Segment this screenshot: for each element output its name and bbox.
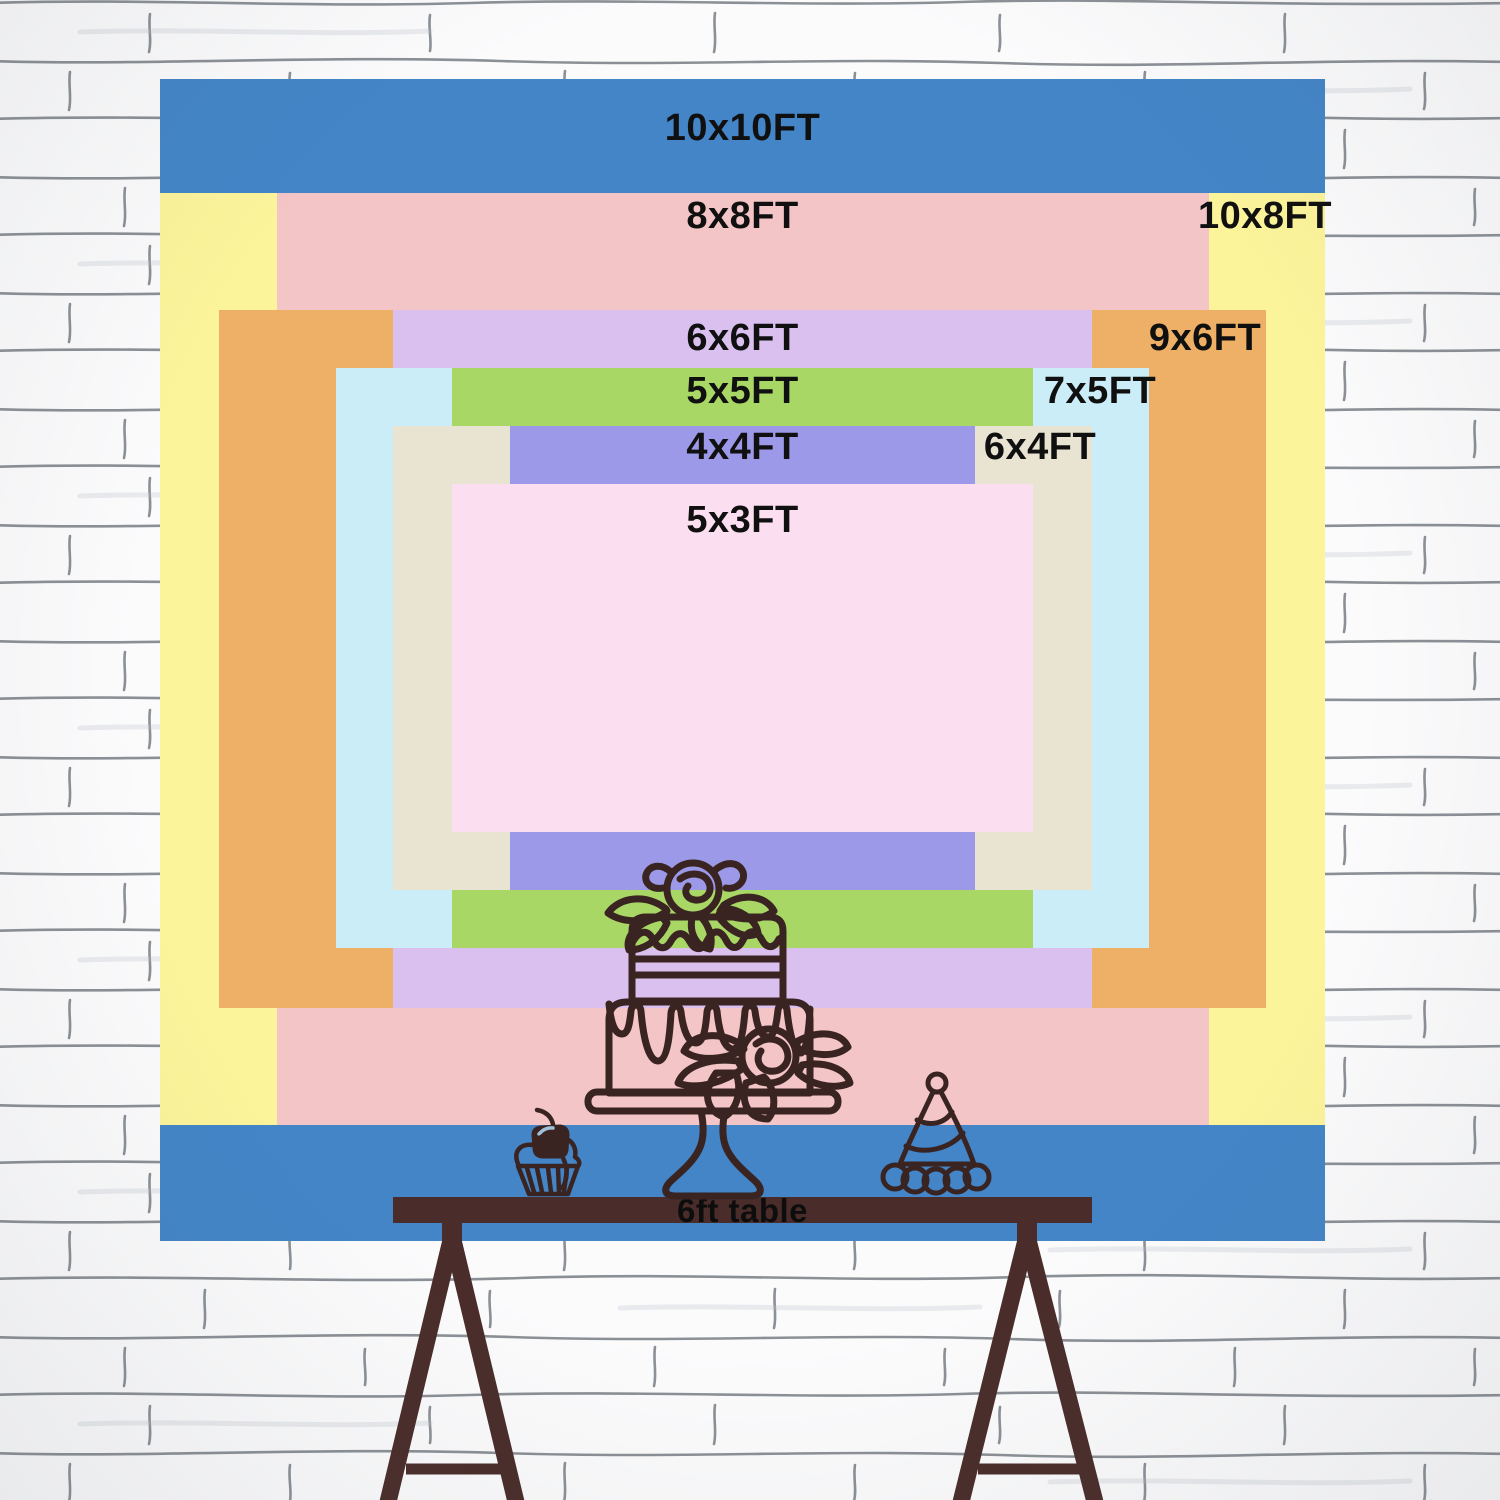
table-legs [388,1220,1095,1500]
party-hat-illustration [883,1074,989,1193]
decor-line-art [0,0,1500,1500]
cupcake-illustration [516,1110,579,1194]
backdrop-size-chart-page: { "background": { "wall_color": "#fbfbfc… [0,0,1500,1500]
cake-illustration [588,863,850,1196]
